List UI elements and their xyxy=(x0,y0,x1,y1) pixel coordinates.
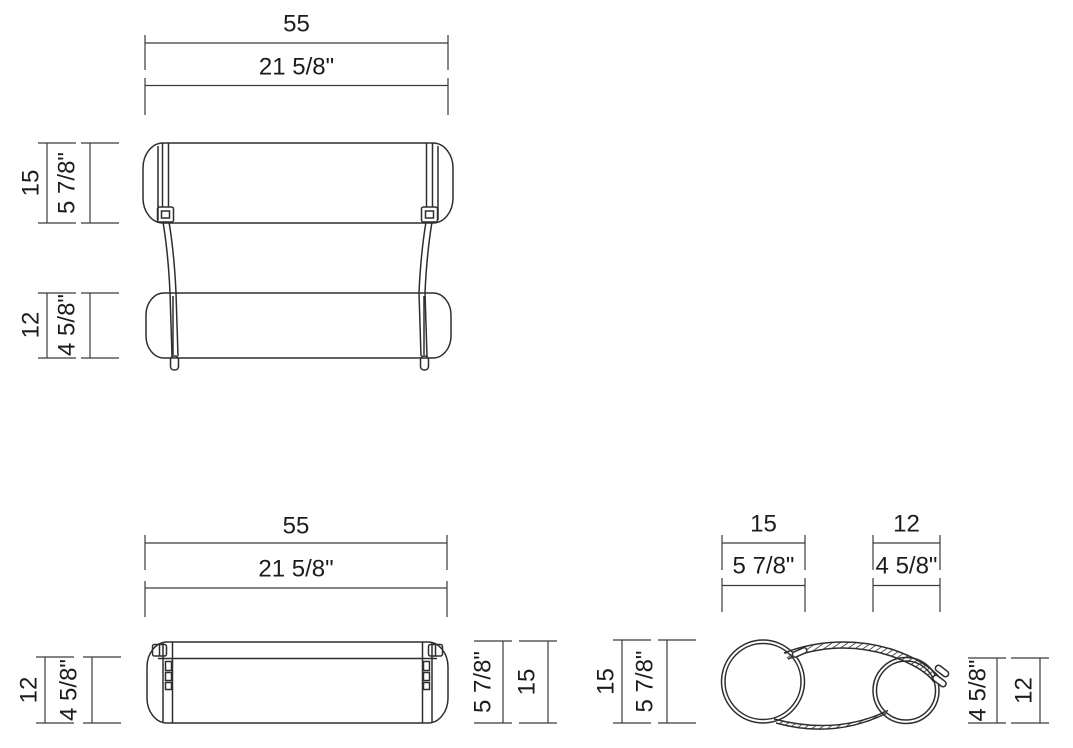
right-strap xyxy=(419,143,438,370)
technical-drawing-canvas: 55 21 5/8" 15 5 7/8" 12 4 5/8" xyxy=(0,0,1073,748)
dim-front-lower-in: 4 5/8" xyxy=(54,294,81,356)
view-side: 15 5 7/8" 12 4 5/8" xyxy=(593,511,1050,730)
dim-side-right-cm: 12 xyxy=(1011,677,1038,704)
dim-side-small-cm: 12 xyxy=(893,511,920,538)
lower-roll-outline xyxy=(146,293,451,358)
view-front-assembled: 55 21 5/8" 15 5 7/8" 12 4 5/8" xyxy=(18,11,454,371)
dim-front-upper-cm: 15 xyxy=(18,170,45,197)
side-small-diameter-dimension: 12 4 5/8" xyxy=(873,511,940,613)
bolster-dimension-drawing: 55 21 5/8" 15 5 7/8" 12 4 5/8" xyxy=(0,0,1073,748)
dim-side-left-in: 5 7/8" xyxy=(632,651,659,713)
single-left-height-dimension: 12 4 5/8" xyxy=(16,657,122,723)
side-right-height-dimension: 4 5/8" 12 xyxy=(965,658,1050,723)
front-width-dimension: 55 21 5/8" xyxy=(145,11,448,116)
left-strap xyxy=(158,143,179,370)
side-large-diameter-dimension: 15 5 7/8" xyxy=(722,511,805,613)
left-buckle xyxy=(158,207,174,222)
dim-side-large-in: 5 7/8" xyxy=(733,553,795,580)
dim-front-width-cm: 55 xyxy=(283,11,310,38)
view-front-single: 55 21 5/8" xyxy=(16,513,558,724)
upper-roll-outline xyxy=(143,143,453,223)
dim-single-width-cm: 55 xyxy=(283,513,310,540)
dim-front-lower-cm: 12 xyxy=(18,312,45,339)
dim-side-large-cm: 15 xyxy=(750,511,777,538)
single-right-strap xyxy=(423,642,443,723)
single-right-height-dimension: 5 7/8" 15 xyxy=(470,641,558,723)
single-width-dimension: 55 21 5/8" xyxy=(145,513,447,618)
dim-single-width-in: 21 5/8" xyxy=(258,556,333,583)
single-roll-outline xyxy=(147,642,448,723)
dim-side-small-in: 4 5/8" xyxy=(876,553,938,580)
front-upper-height-dimension: 15 5 7/8" xyxy=(18,143,120,223)
dim-single-front-in: 4 5/8" xyxy=(56,659,83,721)
single-left-strap xyxy=(153,642,173,723)
dim-single-full-in: 5 7/8" xyxy=(470,651,497,713)
dim-front-upper-in: 5 7/8" xyxy=(54,152,81,214)
dim-single-front-cm: 12 xyxy=(16,677,43,704)
dim-front-width-in: 21 5/8" xyxy=(259,54,334,81)
dim-side-left-cm: 15 xyxy=(593,668,620,695)
dim-single-full-cm: 15 xyxy=(514,669,541,696)
right-buckle xyxy=(422,207,438,222)
front-lower-height-dimension: 12 4 5/8" xyxy=(18,293,120,358)
dim-side-right-in: 4 5/8" xyxy=(965,660,992,722)
side-left-height-dimension: 15 5 7/8" xyxy=(593,640,697,723)
